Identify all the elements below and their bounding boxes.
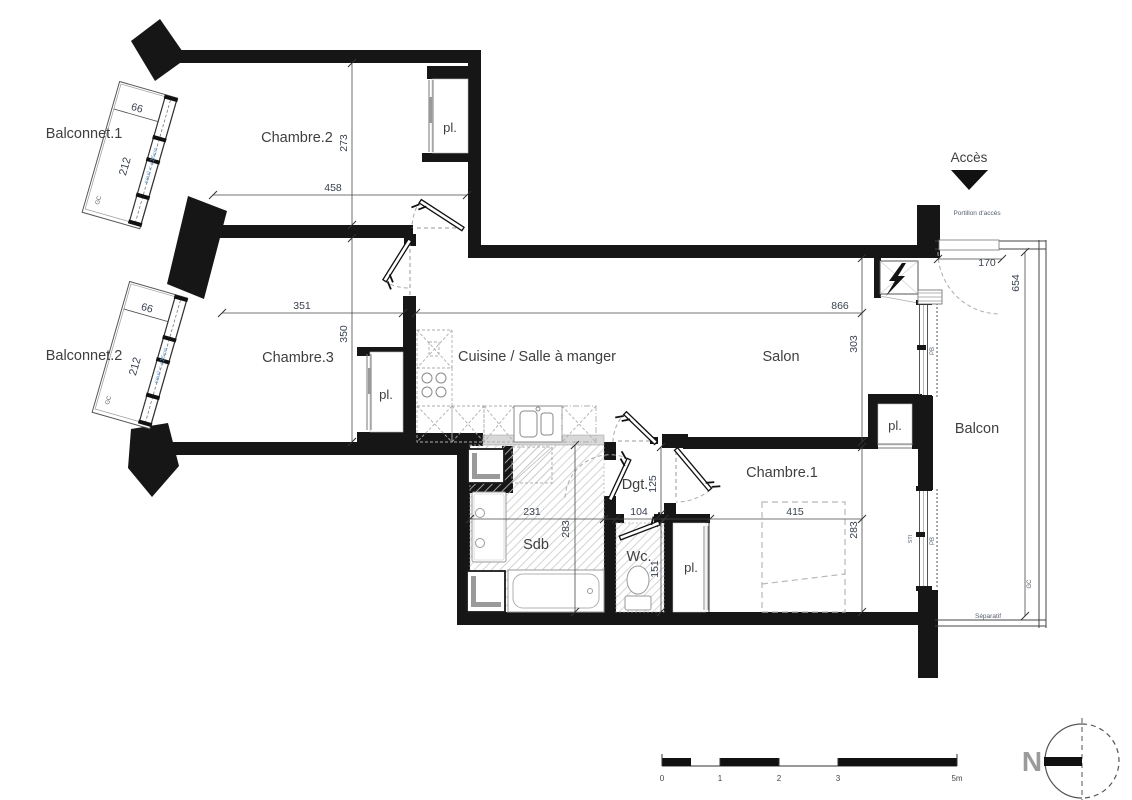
- dim-gate: 170: [978, 257, 996, 269]
- bed-outline: [762, 502, 845, 612]
- label-separatif: Séparatif: [975, 613, 1001, 620]
- label-closet-chambre3: pl.: [379, 387, 393, 402]
- floor-plan-svg: 66 212 GC seuil < ±15cm 66 212 GC seuil …: [0, 0, 1132, 800]
- label-closet-salon: pl.: [888, 418, 902, 433]
- label-balcon: Balcon: [955, 421, 999, 437]
- scale-tick-5m: 5m: [951, 774, 962, 783]
- door-chambre3: [381, 239, 419, 289]
- floor-plan-page: 66 212 GC seuil < ±15cm 66 212 GC seuil …: [0, 0, 1132, 800]
- door-chambre2: [411, 197, 464, 237]
- label-sdb: Sdb: [523, 537, 549, 553]
- dim-chambre2-h: 273: [338, 134, 350, 152]
- dim-balcon-length: 654: [1010, 274, 1022, 292]
- dim-chambre1-h: 283: [848, 521, 860, 539]
- tag-pb-chambre1: PB: [930, 537, 936, 545]
- label-balconnet2: Balconnet.2: [46, 348, 123, 364]
- access-gate: [939, 240, 999, 250]
- dim-chambre3-w: 351: [293, 300, 311, 312]
- label-balconnet1: Balconnet.1: [46, 126, 123, 142]
- dim-dgt-h: 125: [647, 475, 659, 493]
- scale-tick-1: 1: [718, 774, 723, 783]
- tag-gc-balcon: GC: [1027, 579, 1033, 589]
- scale-tick-2: 2: [777, 774, 782, 783]
- door-degagement: [615, 409, 657, 450]
- label-cuisine: Cuisine / Salle à manger: [458, 349, 616, 365]
- kitchen-counter: [417, 330, 596, 442]
- dim-wc-h: 151: [649, 560, 661, 578]
- north-symbol: N: [1022, 718, 1119, 800]
- north-bar: [1044, 757, 1082, 766]
- duct-box-2: [467, 571, 505, 612]
- label-acces: Accès: [951, 150, 988, 165]
- dim-chambre3-h: 350: [338, 325, 350, 343]
- dim-sdb-w: 231: [523, 506, 541, 518]
- label-wc: Wc.: [627, 549, 652, 565]
- kitchen-sink: [514, 406, 562, 442]
- dim-sdb-h: 283: [560, 520, 572, 538]
- label-closet-chambre2: pl.: [443, 120, 457, 135]
- dim-chambre2-w: 458: [324, 182, 342, 194]
- closet-chambre2: [429, 79, 468, 153]
- vanity: [472, 492, 506, 562]
- dim-wc-w: 104: [630, 506, 648, 518]
- entry-door-sill: [918, 290, 942, 304]
- dim-salon-w: 866: [831, 300, 849, 312]
- balconnet-1: 66 212 GC seuil < ±15cm: [82, 82, 178, 230]
- label-salon: Salon: [762, 349, 799, 365]
- toilet: [625, 566, 651, 610]
- north-letter: N: [1022, 746, 1042, 777]
- label-dgt: Dgt.: [622, 477, 649, 493]
- access-arrow-icon: [951, 170, 988, 190]
- dim-chambre1-w: 415: [786, 506, 804, 518]
- label-portillon: Portillon d'accès: [953, 210, 1001, 217]
- duct-box-1: [468, 449, 504, 483]
- label-closet-wc: pl.: [684, 560, 698, 575]
- tag-pb-salon: PB: [930, 347, 936, 355]
- scale-bar: 0 1 2 3 5m: [660, 754, 963, 783]
- dim-salon-h: 303: [848, 335, 860, 353]
- label-chambre2: Chambre.2: [261, 130, 333, 146]
- electrical-panel: [880, 261, 918, 303]
- scale-tick-3: 3: [836, 774, 841, 783]
- label-chambre1: Chambre.1: [746, 465, 818, 481]
- bathtub: [508, 570, 604, 612]
- label-chambre3: Chambre.3: [262, 350, 334, 366]
- access-marker: Accès Portillon d'accès: [951, 150, 1002, 217]
- door-chambre1: [674, 443, 720, 494]
- hob: [422, 373, 446, 397]
- tag-sti-chambre1: STI: [908, 534, 914, 543]
- scale-tick-0: 0: [660, 774, 665, 783]
